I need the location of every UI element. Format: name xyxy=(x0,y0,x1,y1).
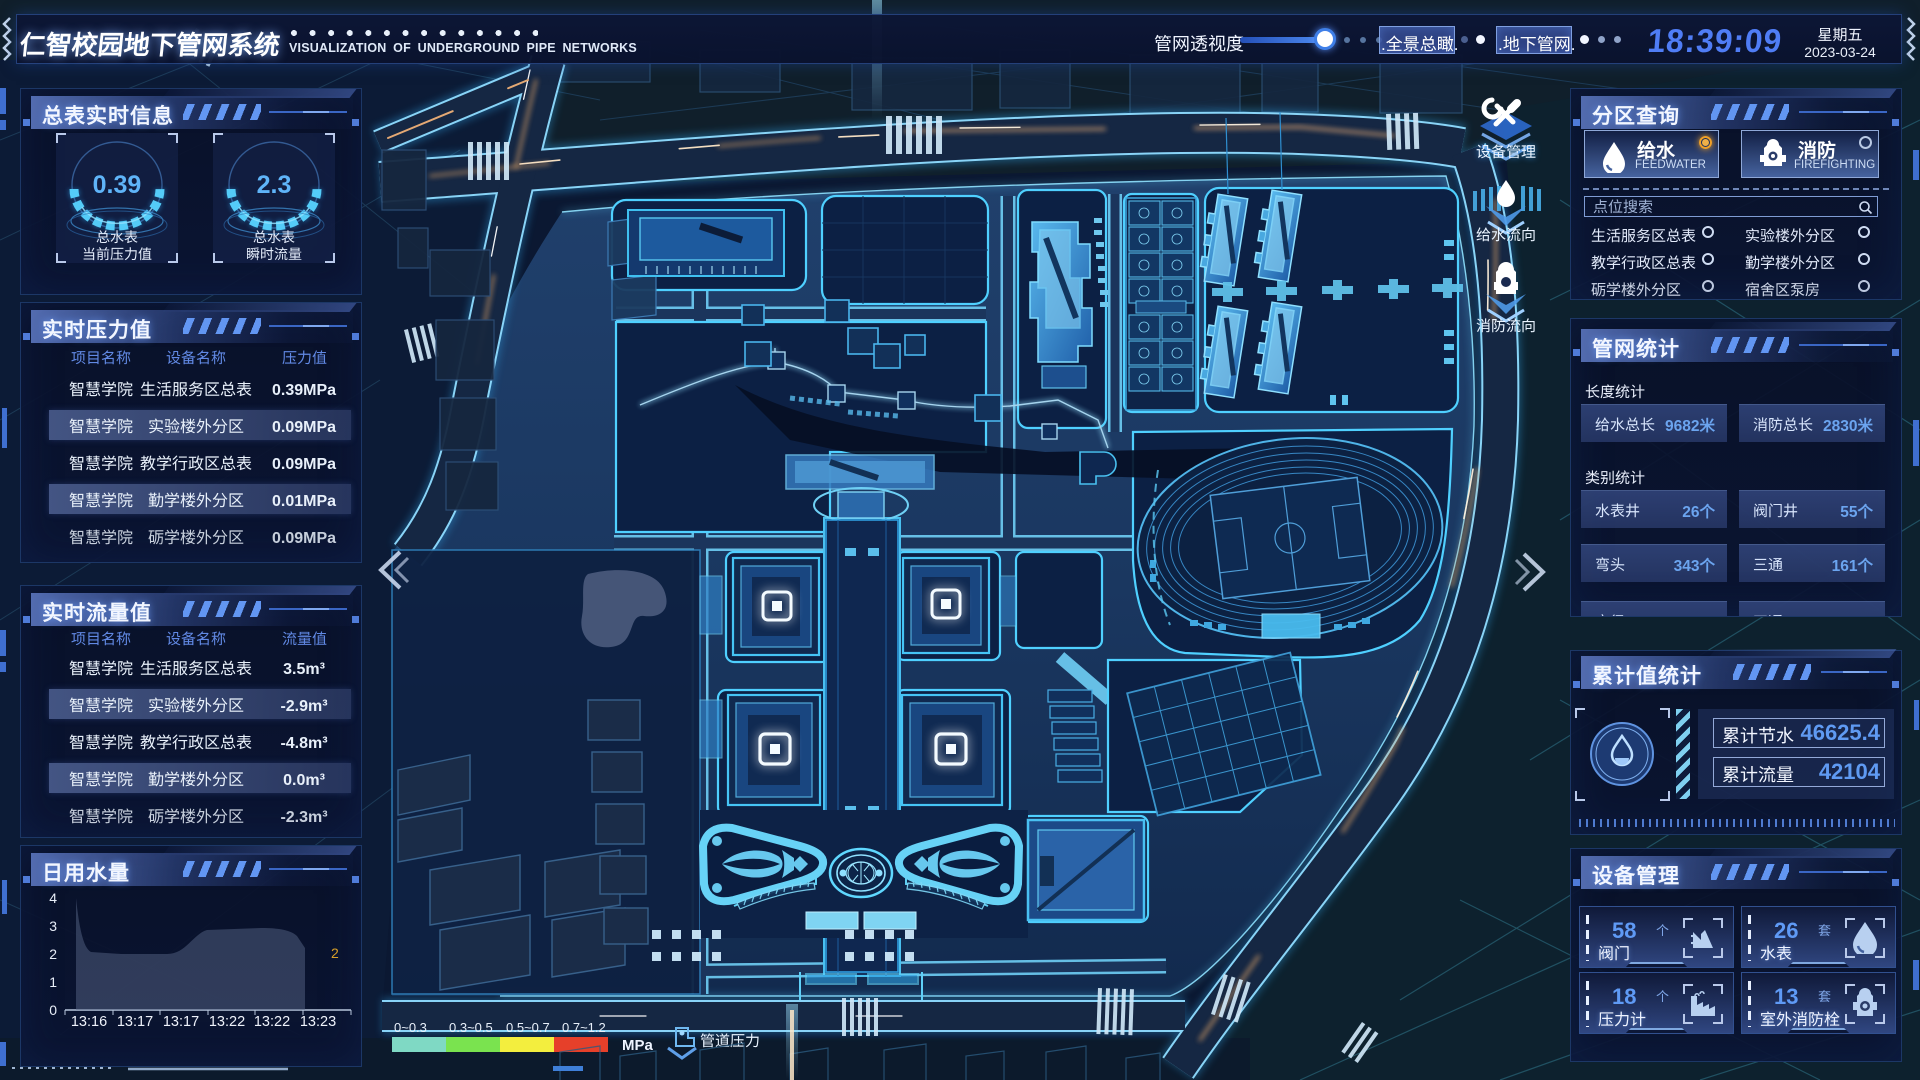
svg-text:1: 1 xyxy=(49,974,57,990)
svg-text:0: 0 xyxy=(49,1002,57,1018)
svg-text:0.3~0.5: 0.3~0.5 xyxy=(449,1017,493,1036)
svg-text:设备管理: 设备管理 xyxy=(1476,141,1536,162)
svg-text:13:22: 13:22 xyxy=(209,1014,245,1030)
svg-text:2: 2 xyxy=(49,946,57,962)
svg-text:消防流向: 消防流向 xyxy=(1476,315,1536,336)
svg-text:0.7~1.2: 0.7~1.2 xyxy=(562,1017,606,1036)
svg-text:管道压力: 管道压力 xyxy=(700,1030,760,1051)
svg-text:13:17: 13:17 xyxy=(163,1014,199,1030)
svg-text:13:16: 13:16 xyxy=(71,1014,107,1030)
svg-text:13:17: 13:17 xyxy=(117,1014,153,1030)
svg-text:4: 4 xyxy=(49,890,57,906)
svg-text:3: 3 xyxy=(49,918,57,934)
svg-text:给水流向: 给水流向 xyxy=(1476,224,1536,245)
svg-text:0~0.3: 0~0.3 xyxy=(394,1017,427,1036)
svg-text:2: 2 xyxy=(331,945,339,961)
svg-text:13:23: 13:23 xyxy=(300,1014,336,1030)
svg-text:13:22: 13:22 xyxy=(254,1014,290,1030)
svg-text:0.5~0.7: 0.5~0.7 xyxy=(506,1017,550,1036)
